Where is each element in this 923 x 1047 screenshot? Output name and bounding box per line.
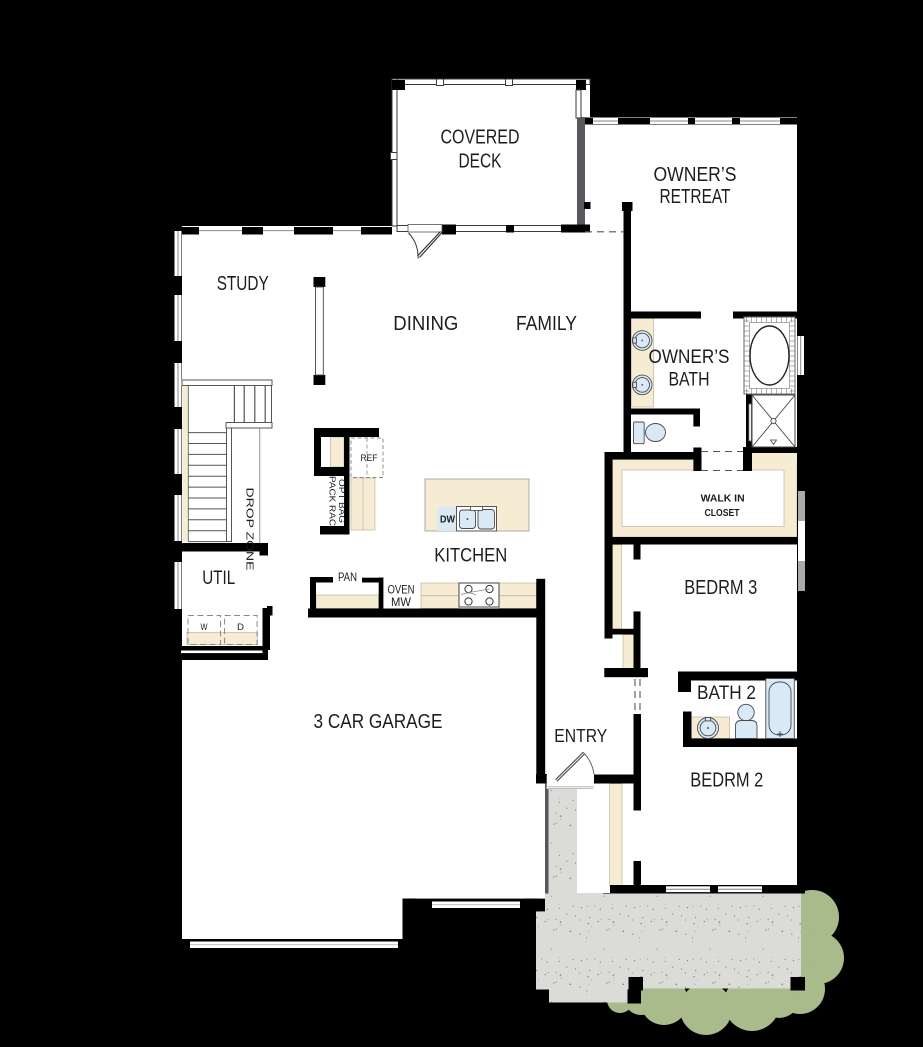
svg-text:RETREAT: RETREAT: [660, 186, 731, 208]
svg-text:DROP ZONE: DROP ZONE: [244, 488, 256, 571]
svg-text:3 CAR GARAGE: 3 CAR GARAGE: [314, 711, 443, 733]
svg-text:BATH: BATH: [669, 370, 710, 391]
svg-text:REF: REF: [361, 453, 378, 464]
svg-text:WALK IN: WALK IN: [701, 493, 745, 505]
svg-text:UTIL: UTIL: [202, 568, 235, 589]
svg-text:BEDRM 3: BEDRM 3: [684, 577, 757, 599]
svg-text:COVERED: COVERED: [441, 127, 520, 149]
svg-text:PACK RAC: PACK RAC: [328, 476, 338, 526]
svg-text:CLOSET: CLOSET: [705, 507, 740, 519]
svg-text:OPT BAG: OPT BAG: [337, 479, 347, 523]
svg-text:KITCHEN: KITCHEN: [434, 546, 507, 567]
svg-text:D: D: [237, 622, 245, 632]
svg-text:OWNER’S: OWNER’S: [654, 164, 737, 186]
svg-text:ENTRY: ENTRY: [554, 726, 607, 746]
svg-text:MW: MW: [391, 597, 411, 609]
svg-text:BATH 2: BATH 2: [697, 683, 756, 704]
svg-text:STUDY: STUDY: [217, 273, 269, 295]
svg-text:BEDRM 2: BEDRM 2: [690, 770, 763, 792]
svg-text:FAMILY: FAMILY: [516, 313, 577, 335]
svg-text:PAN: PAN: [338, 572, 357, 584]
svg-text:DECK: DECK: [459, 151, 503, 173]
svg-text:OWNER’S: OWNER’S: [649, 347, 730, 368]
svg-text:DW: DW: [440, 515, 455, 526]
svg-text:W: W: [201, 622, 208, 632]
svg-text:OVEN: OVEN: [388, 585, 415, 597]
svg-text:DINING: DINING: [393, 313, 458, 335]
